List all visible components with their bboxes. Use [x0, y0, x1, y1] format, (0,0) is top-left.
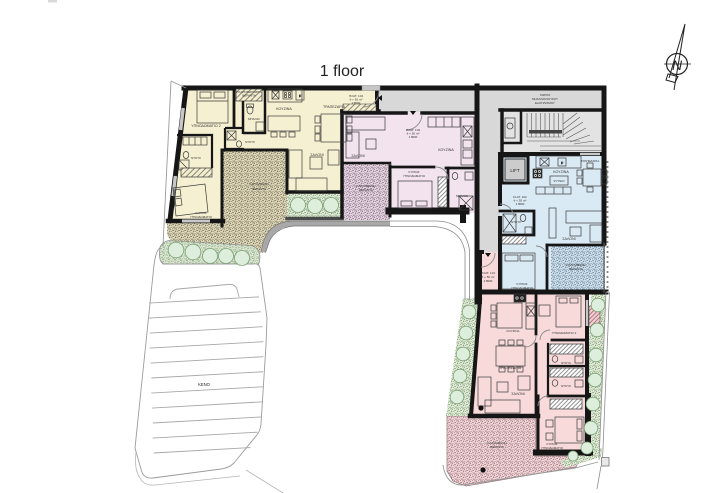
svg-text:ΤΡΑΠΕΖΑΡΙΑ: ΤΡΑΠΕΖΑΡΙΑ [581, 159, 599, 163]
svg-text:ΚΕΝΟ: ΚΕΝΟ [198, 382, 211, 387]
svg-text:ΤΡΑΠΕΖΑΡΙΑ: ΤΡΑΠΕΖΑΡΙΑ [499, 366, 522, 370]
svg-text:ΒΕΡΑΝΤΑ: ΒΕΡΑΝΤΑ [490, 445, 504, 449]
svg-text:ΚΟΥΖΙΝΑ: ΚΟΥΖΙΝΑ [438, 148, 454, 152]
svg-text:ΒΕΡΑΝΤΑ: ΒΕΡΑΝΤΑ [252, 187, 266, 191]
svg-text:ΨΥΓΕΙΟ: ΨΥΓΕΙΟ [553, 179, 565, 183]
svg-text:1 BDR: 1 BDR [409, 135, 419, 139]
svg-text:ΣΑΛΟΝΙ: ΣΑΛΟΝΙ [511, 392, 524, 396]
svg-text:ΚΟΥΖΙΝΑ: ΚΟΥΖΙΝΑ [553, 170, 569, 174]
svg-text:ΥΠΝΟΔΩΜΑΤΙΟ: ΥΠΝΟΔΩΜΑΤΙΟ [403, 174, 426, 178]
svg-text:ΒΕΡΑΝΤΑ: ΒΕΡΑΝΤΑ [359, 188, 373, 192]
svg-text:ΚΑΛΥΜΜΕΝΗ: ΚΑΛΥΜΜΕΝΗ [249, 182, 268, 186]
svg-text:ΥΠΝΟΔΩΜΑΤΙΟ: ΥΠΝΟΔΩΜΑΤΙΟ [190, 215, 213, 219]
svg-text:ΕΞΟΠΛΙΣΜΟΥ: ΕΞΟΠΛΙΣΜΟΥ [535, 101, 555, 105]
svg-text:ΝΤΟΥΣ: ΝΤΟΥΣ [191, 156, 201, 160]
svg-text:ΣΑΛΟΝΙ: ΣΑΛΟΝΙ [562, 237, 575, 241]
svg-text:ΚΟΥΖΙΝΑ: ΚΟΥΖΙΝΑ [276, 107, 292, 111]
svg-text:N: N [672, 57, 683, 73]
svg-text:ΜΠΑΝΙΟ: ΜΠΑΝΙΟ [456, 194, 469, 198]
svg-text:ΝΤΟΥΣ: ΝΤΟΥΣ [511, 220, 521, 224]
svg-text:ΒΕΡΑΝΤΑ: ΒΕΡΑΝΤΑ [242, 94, 256, 98]
svg-text:ΝΤΟΥΣ: ΝΤΟΥΣ [561, 361, 571, 365]
svg-text:ΤΡΑΠΕΖΑΡΙΑ: ΤΡΑΠΕΖΑΡΙΑ [323, 105, 346, 109]
svg-text:ΒΕΡΑΝΤΑ: ΒΕΡΑΝΤΑ [569, 267, 583, 271]
svg-text:2 BDR: 2 BDR [484, 279, 494, 283]
svg-text:ΝΤΟΥΣ: ΝΤΟΥΣ [245, 140, 255, 144]
svg-text:ΣΑΛΟΝΙ: ΣΑΛΟΝΙ [310, 153, 323, 157]
svg-text:F: F [561, 161, 563, 165]
svg-text:ΥΠΝΟΔΩΜΑΤΙΟ: ΥΠΝΟΔΩΜΑΤΙΟ [511, 286, 534, 290]
svg-text:ΜΠΑΝΙΟ: ΜΠΑΝΙΟ [248, 117, 261, 121]
svg-text:F: F [299, 94, 301, 98]
svg-text:1 floor: 1 floor [320, 63, 365, 80]
svg-text:1 BDR: 1 BDR [516, 202, 526, 206]
svg-text:ΥΠΝΟΔΩΜΑΤΙΟ: ΥΠΝΟΔΩΜΑΤΙΟ [541, 446, 564, 450]
svg-text:2 BDR: 2 BDR [352, 101, 362, 105]
svg-text:LIFT: LIFT [510, 168, 520, 173]
svg-text:ΝΤΟΥΣ: ΝΤΟΥΣ [561, 384, 571, 388]
svg-text:ΥΠΝΟΔΩΜΑΤΙΟ 2: ΥΠΝΟΔΩΜΑΤΙΟ 2 [191, 124, 221, 128]
svg-text:ΣΑΛΟΝΙ: ΣΑΛΟΝΙ [351, 154, 364, 158]
svg-text:ΚΟΥΖΙΝΑ: ΚΟΥΖΙΝΑ [507, 329, 520, 333]
svg-text:ΥΠΝΟΔΩΜΑΤΙΟ 2: ΥΠΝΟΔΩΜΑΤΙΟ 2 [552, 331, 577, 335]
